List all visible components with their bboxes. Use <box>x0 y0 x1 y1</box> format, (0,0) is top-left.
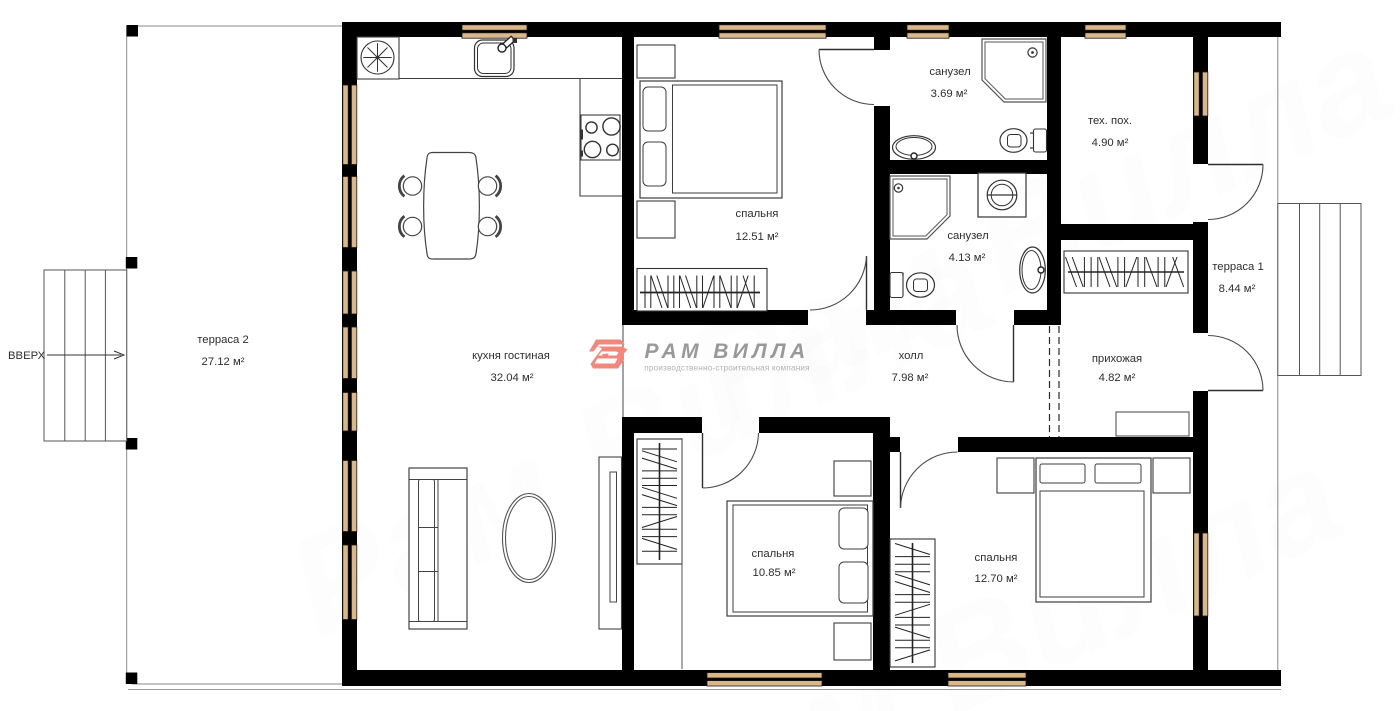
svg-text:холл: холл <box>899 350 924 362</box>
svg-text:РАМ ВИЛЛА: РАМ ВИЛЛА <box>644 340 809 363</box>
svg-text:7.98 м²: 7.98 м² <box>892 372 929 384</box>
svg-text:спальня: спальня <box>752 548 795 560</box>
svg-text:производственно-строительная к: производственно-строительная компания <box>644 364 810 373</box>
svg-text:прихожая: прихожая <box>1092 353 1142 365</box>
svg-text:спальня: спальня <box>975 552 1018 564</box>
svg-text:спальня: спальня <box>736 208 779 220</box>
svg-text:кухня гостиная: кухня гостиная <box>472 350 550 362</box>
svg-text:4.13 м²: 4.13 м² <box>949 252 986 264</box>
svg-text:4.90 м²: 4.90 м² <box>1092 137 1129 149</box>
svg-text:терраса 2: терраса 2 <box>197 334 249 346</box>
svg-text:4.82 м²: 4.82 м² <box>1099 372 1136 384</box>
svg-text:терраса 1: терраса 1 <box>1212 261 1264 273</box>
svg-text:8.44 м²: 8.44 м² <box>1219 283 1256 295</box>
svg-text:27.12 м²: 27.12 м² <box>202 356 245 368</box>
svg-text:12.51 м²: 12.51 м² <box>736 231 779 243</box>
svg-text:32.04 м²: 32.04 м² <box>491 372 534 384</box>
svg-text:10.85 м²: 10.85 м² <box>753 567 796 579</box>
svg-text:санузел: санузел <box>947 230 988 242</box>
svg-text:ВВЕРХ: ВВЕРХ <box>8 350 46 362</box>
svg-text:12.70 м²: 12.70 м² <box>975 573 1018 585</box>
svg-text:тех. пох.: тех. пох. <box>1088 115 1132 127</box>
svg-text:3.69 м²: 3.69 м² <box>931 88 968 100</box>
svg-text:санузел: санузел <box>929 66 970 78</box>
